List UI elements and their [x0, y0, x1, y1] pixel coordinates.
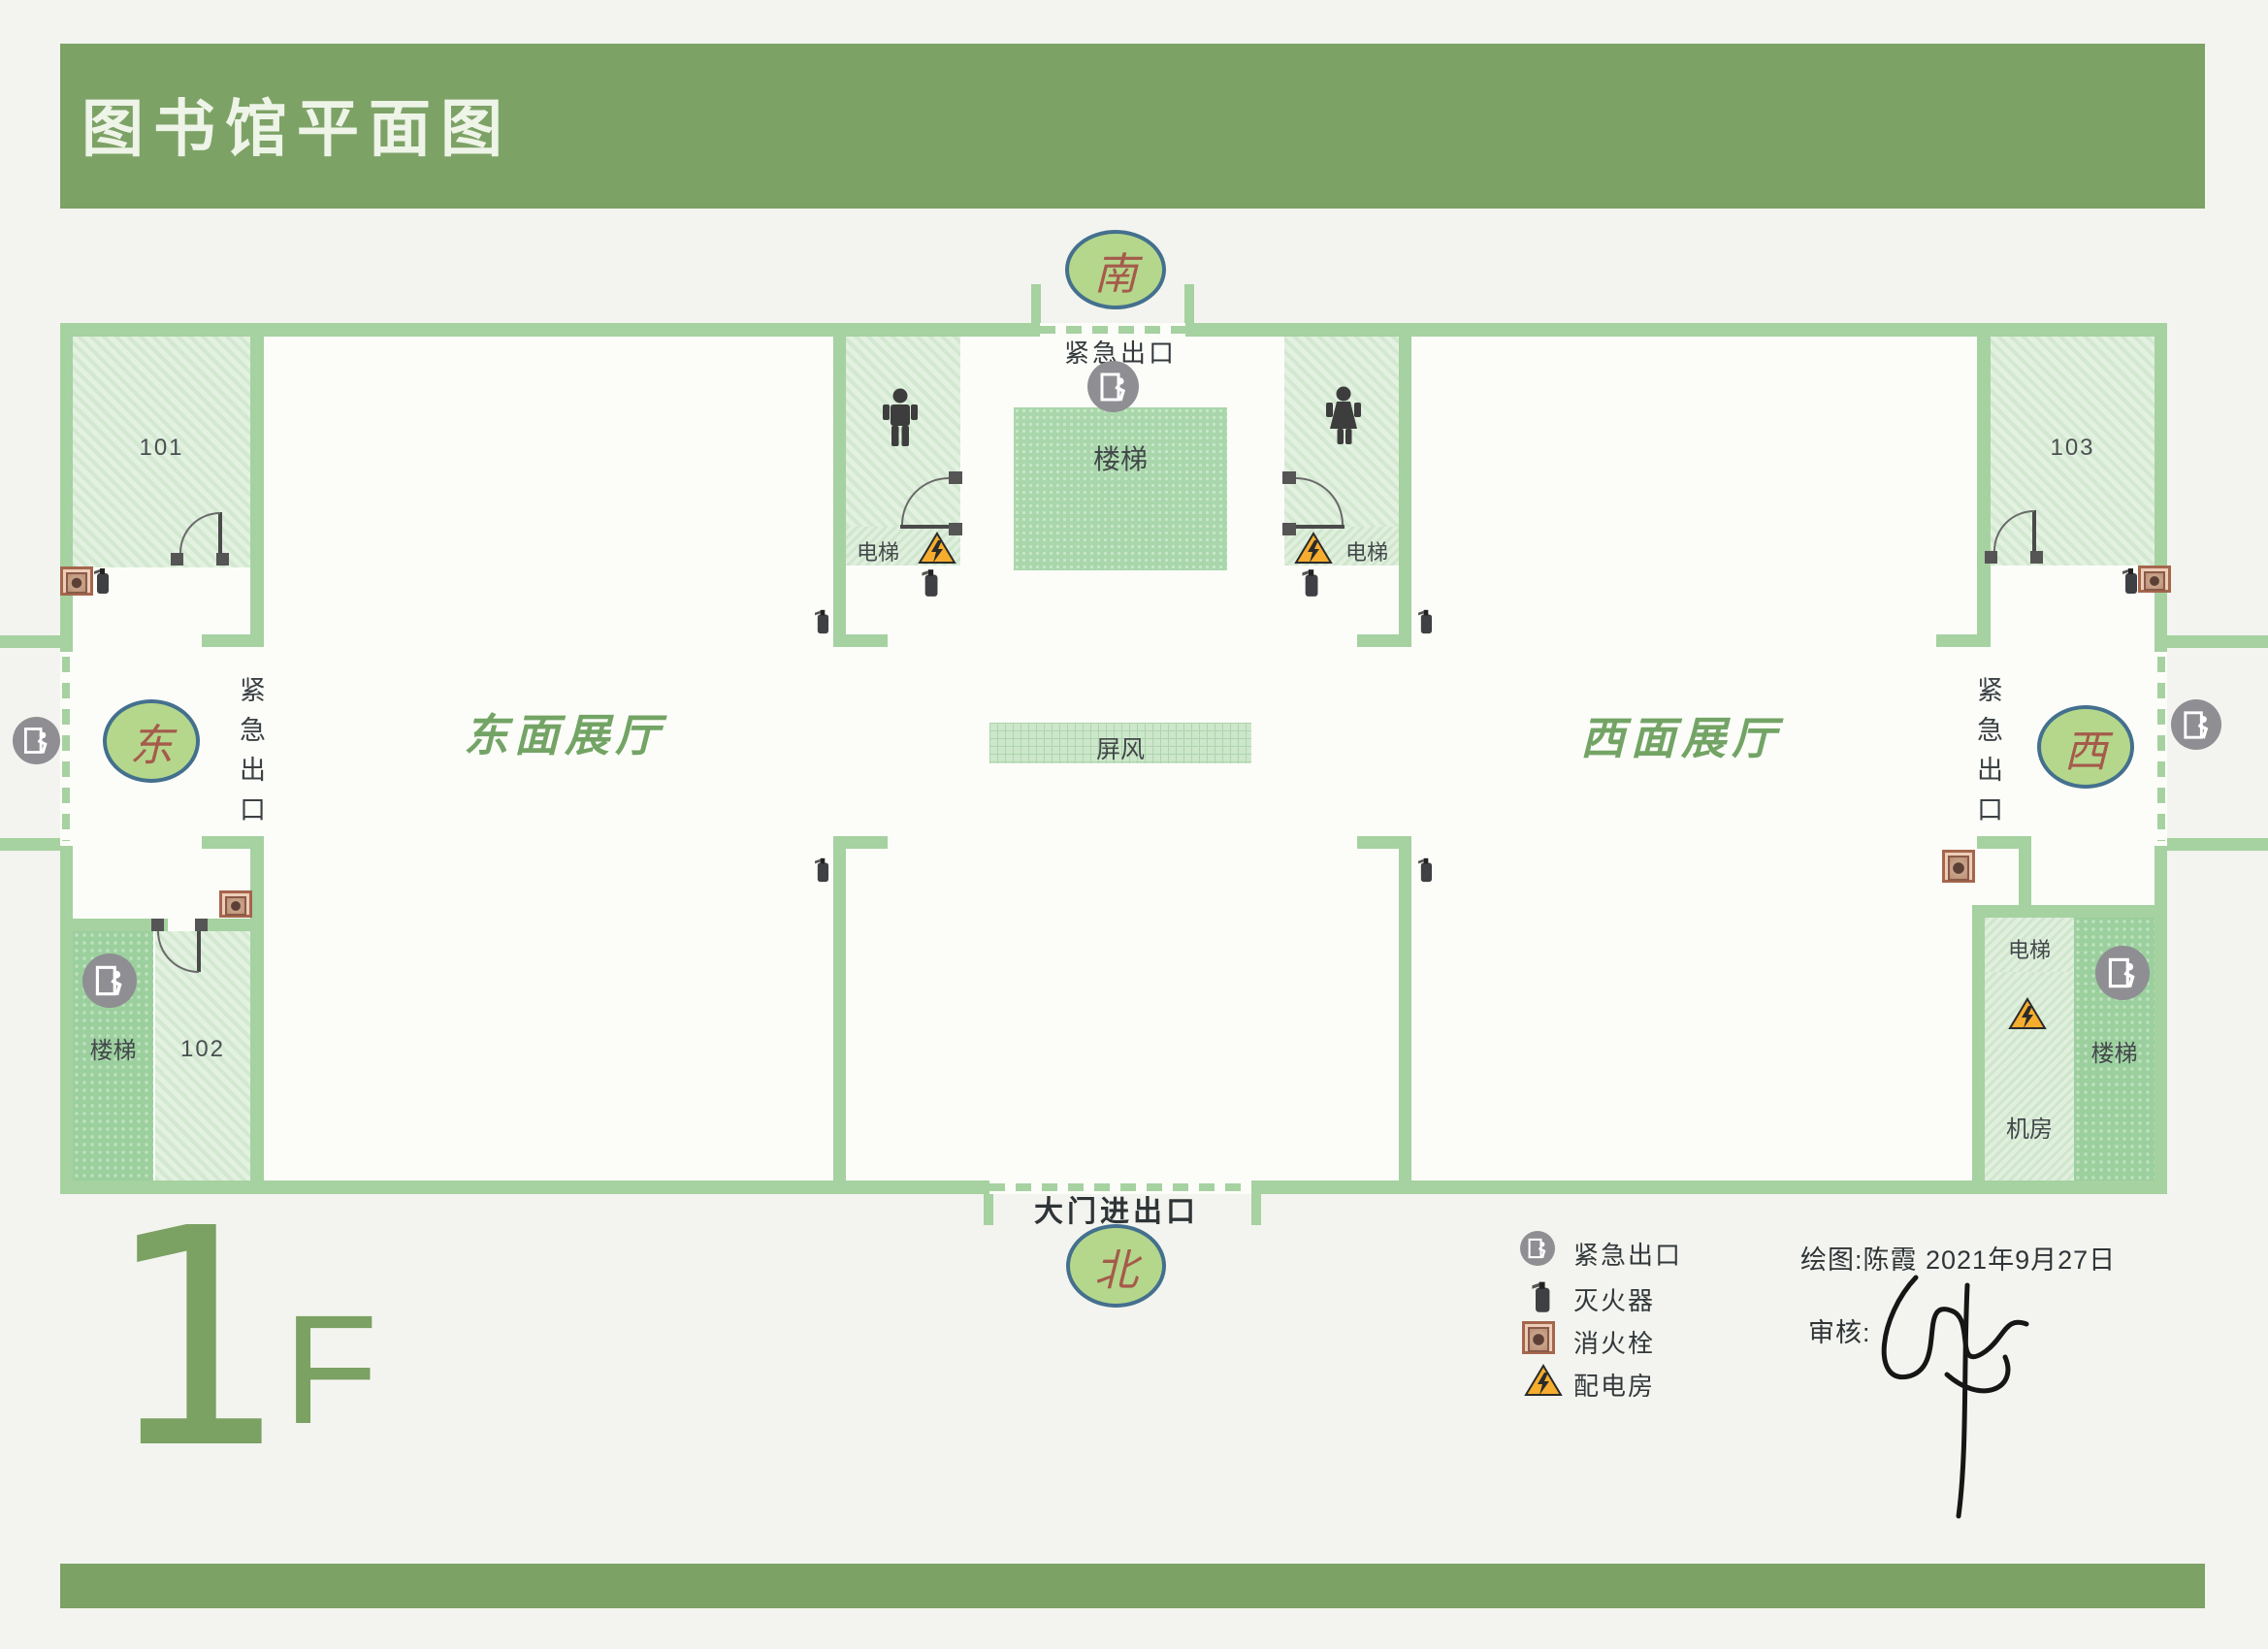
wall-stub [1972, 905, 1985, 1194]
compass-south: 南 [1065, 230, 1166, 309]
door-swing-mens-restroom [898, 471, 962, 535]
wall-center-left-upper [833, 323, 846, 647]
wall-top-right [1185, 323, 2167, 337]
emergency-exit-label-west: 紧急出口 [1969, 676, 2007, 835]
elevator-left-label: 电梯 [848, 535, 908, 566]
power-room-icon [2008, 997, 2047, 1030]
east-exit-opening [62, 657, 70, 841]
compass-north: 北 [1066, 1224, 1166, 1308]
room-101-label: 101 [73, 435, 250, 462]
wall-103-left [1977, 323, 1991, 647]
floor-suffix: F [283, 1292, 378, 1447]
exit-icon [2171, 699, 2221, 750]
stairs-bottom-right-label: 楼梯 [2074, 1034, 2155, 1068]
door-swing-101 [171, 508, 235, 568]
compass-north-char: 北 [1094, 1235, 1138, 1298]
wall-stub [0, 838, 60, 851]
wall-center-right-upper [1399, 323, 1411, 647]
wall-stub [1977, 836, 2031, 849]
room-102-label: 102 [155, 1036, 250, 1063]
floor-number: 1 [101, 1195, 282, 1486]
wall-102-right [250, 836, 264, 1194]
fire-extinguisher-icon [920, 566, 941, 598]
east-hall-label: 东面展厅 [400, 700, 729, 764]
compass-west-char: 西 [2063, 716, 2107, 779]
south-exit-opening [1040, 326, 1185, 334]
wall-stub [1972, 905, 2155, 918]
room-103-label: 103 [1991, 435, 2155, 462]
library-floor-plan-page: 图书馆平面图 [0, 0, 2268, 1649]
power-room-icon [918, 532, 956, 565]
compass-east: 东 [103, 699, 200, 783]
compass-south-char: 南 [1093, 239, 1137, 302]
emergency-exit-label-east: 紧急出口 [232, 676, 270, 835]
exit-icon [1520, 1231, 1555, 1266]
exit-icon [82, 954, 137, 1008]
page-title: 图书馆平面图 [81, 80, 512, 169]
reviewer-signature [1858, 1256, 2061, 1537]
wall-stub [2167, 838, 2268, 851]
central-stairs [1014, 407, 1227, 570]
machine-room-label: 机房 [1985, 1110, 2074, 1144]
fire-extinguisher-icon [813, 856, 831, 883]
wall-stub [202, 634, 250, 647]
wall-top-left [60, 323, 1040, 337]
wall-101-right [250, 323, 264, 647]
wall-stub [1357, 836, 1411, 849]
wall-stub [2167, 635, 2268, 648]
legend-fire-hydrant-label: 消火栓 [1573, 1324, 1655, 1360]
fire-extinguisher-icon [1416, 607, 1435, 634]
door-swing-womens-restroom [1282, 471, 1346, 535]
fire-hydrant-icon [60, 566, 93, 596]
fire-hydrant-icon [2138, 566, 2171, 593]
wall-stub [1936, 634, 1977, 647]
fire-extinguisher-icon [813, 607, 831, 634]
wall-stub [833, 634, 888, 647]
elevator-right-label: 电梯 [1337, 535, 1397, 566]
stairs-bottom-left-label: 楼梯 [73, 1031, 153, 1065]
fire-hydrant-icon [1522, 1321, 1555, 1354]
wall-stub [1357, 634, 1411, 647]
bottom-bar [60, 1564, 2205, 1608]
door-swing-103 [1985, 506, 2049, 566]
wall-left-lower [60, 846, 73, 1194]
wall-left-upper [60, 323, 73, 652]
compass-east-char: 东 [129, 710, 173, 773]
wall-stub [202, 836, 250, 849]
wall-stub [1031, 284, 1041, 323]
fire-extinguisher-icon [1530, 1277, 1553, 1314]
west-exit-opening [2157, 657, 2165, 841]
compass-west: 西 [2037, 705, 2134, 789]
wall-stub [0, 635, 60, 648]
fire-extinguisher-icon [1300, 566, 1321, 598]
wall-center-right-lower [1399, 836, 1411, 1180]
wall-stub [1184, 284, 1194, 323]
door-swing-102 [151, 919, 215, 979]
wall-right-upper [2155, 323, 2167, 652]
wall-right-lower [2155, 846, 2167, 1194]
power-room-icon [1524, 1364, 1563, 1397]
wall-stub [833, 836, 888, 849]
exit-icon [2095, 946, 2150, 1000]
screen-label: 屏风 [989, 730, 1251, 765]
wall-center-left-lower [833, 836, 846, 1180]
wall-bottom-right [1251, 1180, 2167, 1194]
legend-fire-extinguisher-label: 灭火器 [1573, 1281, 1655, 1317]
fire-extinguisher-icon [92, 566, 112, 595]
male-restroom-icon [878, 388, 923, 448]
power-room-icon [1294, 532, 1333, 565]
central-stairs-label: 楼梯 [1014, 438, 1227, 477]
fire-hydrant-icon [219, 890, 252, 918]
fire-hydrant-icon [1942, 850, 1975, 883]
exit-icon [1087, 361, 1139, 412]
wall-stub [2019, 849, 2031, 905]
exit-icon [13, 717, 60, 764]
legend-emergency-exit-label: 紧急出口 [1573, 1236, 1682, 1272]
legend-power-room-label: 配电房 [1573, 1367, 1655, 1403]
elevator-bottom-right-label: 电梯 [1985, 933, 2074, 964]
fire-extinguisher-icon [2121, 566, 2140, 595]
fire-extinguisher-icon [1416, 856, 1435, 883]
female-restroom-icon [1321, 386, 1366, 446]
west-hall-label: 西面展厅 [1516, 703, 1846, 767]
